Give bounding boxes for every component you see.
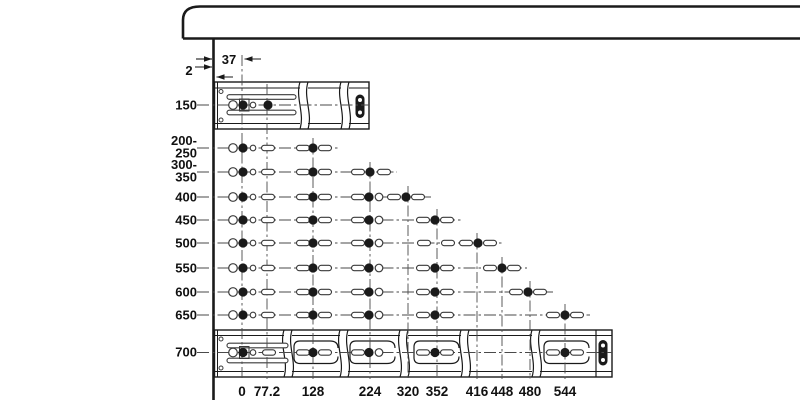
hole-450-7-slot bbox=[352, 217, 365, 222]
hole-500-5-dot bbox=[308, 238, 317, 247]
hole-200-250-0-ring bbox=[229, 144, 238, 153]
hole-700-12-slot bbox=[441, 350, 454, 355]
hole-650-8-dot bbox=[364, 310, 373, 319]
hole-450-11-dot bbox=[430, 215, 439, 224]
hole-500-7-slot bbox=[352, 240, 365, 245]
hole-550-13-slot bbox=[484, 265, 497, 270]
hole-700-6-slot bbox=[319, 350, 332, 355]
hole-650-13-slot bbox=[547, 312, 560, 317]
hole-450-1-dot bbox=[238, 215, 247, 224]
col-label-416: 416 bbox=[466, 384, 489, 399]
hole-600-0-ring bbox=[229, 288, 238, 297]
hole-500-10-slot bbox=[418, 240, 431, 245]
slide-rail-bottom-long-slot-1 bbox=[227, 358, 288, 363]
hole-400-5-dot bbox=[308, 192, 317, 201]
hole-600-15-slot bbox=[534, 289, 547, 294]
slide-rail-top-rear-hook-hole-bottom bbox=[358, 111, 362, 115]
hole-650-10-slot bbox=[417, 312, 430, 317]
hole-700-2-pin bbox=[250, 350, 256, 356]
hole-450-6-slot bbox=[319, 217, 332, 222]
hole-450-8-dot bbox=[364, 215, 373, 224]
hole-450-5-dot bbox=[308, 215, 317, 224]
hole-650-11-dot bbox=[430, 310, 439, 319]
hole-700-1-dot bbox=[238, 348, 247, 357]
hole-450-4-slot bbox=[297, 217, 310, 222]
hole-450-12-slot bbox=[441, 217, 454, 222]
row-label-650: 650 bbox=[175, 308, 197, 323]
hole-550-5-dot bbox=[308, 263, 317, 272]
hole-300-350-1-dot bbox=[238, 167, 247, 176]
hole-400-4-slot bbox=[297, 194, 310, 199]
hole-600-14-dot bbox=[523, 287, 532, 296]
hole-400-9-oring bbox=[375, 193, 383, 201]
row-label-550: 550 bbox=[175, 261, 197, 276]
hole-400-8-dot bbox=[364, 192, 373, 201]
hole-600-8-dot bbox=[364, 287, 373, 296]
hole-400-6-slot bbox=[319, 194, 332, 199]
hole-600-13-slot bbox=[510, 289, 523, 294]
dim-label-37: 37 bbox=[222, 52, 236, 67]
hole-600-2-pin bbox=[250, 289, 256, 295]
hole-650-4-slot bbox=[297, 312, 310, 317]
hole-200-250-6-slot bbox=[319, 145, 332, 150]
col-label-544: 544 bbox=[554, 384, 577, 399]
hole-150-0-ring bbox=[229, 101, 238, 110]
col-label-0: 0 bbox=[238, 384, 246, 399]
hole-450-0-ring bbox=[229, 216, 238, 225]
hole-300-350-4-slot bbox=[297, 169, 310, 174]
hole-500-12-slot bbox=[460, 240, 473, 245]
hole-500-13-dot bbox=[473, 238, 482, 247]
hole-300-350-6-slot bbox=[319, 169, 332, 174]
hole-550-12-slot bbox=[441, 265, 454, 270]
hole-500-6-slot bbox=[319, 240, 332, 245]
slide-rail-bottom-rivet-1 bbox=[219, 366, 223, 370]
hole-700-13-slot bbox=[547, 350, 560, 355]
hole-700-14-dot bbox=[560, 348, 569, 357]
dim-arrowhead-2-0 bbox=[204, 64, 212, 69]
col-label-352: 352 bbox=[426, 384, 449, 399]
hole-450-10-slot bbox=[417, 217, 430, 222]
hole-550-6-slot bbox=[319, 265, 332, 270]
hole-600-7-slot bbox=[352, 289, 365, 294]
hole-500-3-slot bbox=[262, 240, 275, 245]
hole-500-2-pin bbox=[250, 240, 256, 246]
hole-150-3-dot bbox=[263, 100, 272, 109]
hole-450-9-oring bbox=[375, 216, 383, 224]
slide-rail-top-rivet-0 bbox=[219, 90, 223, 94]
slide-rail-top-long-slot-1 bbox=[227, 110, 296, 115]
hole-400-2-pin bbox=[250, 194, 256, 200]
hole-650-12-slot bbox=[441, 312, 454, 317]
col-label-77.2: 77.2 bbox=[254, 384, 280, 399]
row-label-300-350-b: 350 bbox=[175, 170, 197, 185]
hole-500-11-slot bbox=[442, 240, 455, 245]
dim-arrowhead-37-1 bbox=[245, 56, 253, 61]
hole-400-0-ring bbox=[229, 193, 238, 202]
hole-550-2-pin bbox=[250, 265, 256, 271]
dim-arrowhead-2-1 bbox=[217, 74, 225, 79]
hole-550-7-slot bbox=[352, 265, 365, 270]
hole-500-4-slot bbox=[297, 240, 310, 245]
hole-500-8-dot bbox=[364, 238, 373, 247]
slide-rail-bottom-rear-hook-hole-top bbox=[601, 344, 605, 348]
col-label-320: 320 bbox=[397, 384, 420, 399]
hole-600-9-oring bbox=[375, 288, 383, 296]
hole-550-1-dot bbox=[238, 263, 247, 272]
hole-550-3-slot bbox=[262, 265, 275, 270]
hole-600-10-slot bbox=[417, 289, 430, 294]
col-label-128: 128 bbox=[302, 384, 325, 399]
hole-700-15-slot bbox=[571, 350, 584, 355]
hole-650-0-ring bbox=[229, 311, 238, 320]
hole-200-250-5-dot bbox=[308, 143, 317, 152]
hole-550-14-dot bbox=[497, 263, 506, 272]
hole-600-4-slot bbox=[297, 289, 310, 294]
hole-650-15-slot bbox=[571, 312, 584, 317]
hole-700-10-slot bbox=[417, 350, 430, 355]
hole-700-5-dot bbox=[308, 348, 317, 357]
hole-200-250-2-pin bbox=[250, 145, 256, 151]
hole-300-350-2-pin bbox=[250, 169, 256, 175]
slide-rail-bottom-long-slot-0 bbox=[227, 343, 288, 348]
slide-rail-top-long-slot-0 bbox=[227, 95, 296, 100]
hole-700-7-slot bbox=[352, 350, 365, 355]
hole-600-12-slot bbox=[441, 289, 454, 294]
hole-650-14-dot bbox=[560, 310, 569, 319]
hole-300-350-7-slot bbox=[352, 169, 365, 174]
slide-rail-bottom-rivet-0 bbox=[219, 337, 223, 341]
hole-400-12-slot bbox=[412, 194, 425, 199]
hole-600-11-dot bbox=[430, 287, 439, 296]
hole-600-6-slot bbox=[319, 289, 332, 294]
hole-400-10-slot bbox=[388, 194, 401, 199]
hole-650-2-pin bbox=[250, 312, 256, 318]
hole-550-0-ring bbox=[229, 264, 238, 273]
hole-500-9-oring bbox=[375, 239, 383, 247]
hole-650-5-dot bbox=[308, 310, 317, 319]
hole-550-11-dot bbox=[430, 263, 439, 272]
row-label-450: 450 bbox=[175, 213, 197, 228]
slide-rail-top-rivet-1 bbox=[219, 118, 223, 122]
hole-300-350-5-dot bbox=[308, 167, 317, 176]
row-label-400: 400 bbox=[175, 190, 197, 205]
hole-700-9-oring bbox=[375, 349, 383, 357]
hole-550-9-oring bbox=[375, 264, 383, 272]
hole-400-3-slot bbox=[262, 194, 275, 199]
hole-300-350-3-slot bbox=[262, 169, 275, 174]
hole-200-250-3-slot bbox=[262, 145, 275, 150]
hole-300-350-8-dot bbox=[365, 167, 374, 176]
hole-700-0-ring bbox=[229, 348, 238, 357]
col-label-224: 224 bbox=[359, 384, 382, 399]
hole-550-4-slot bbox=[297, 265, 310, 270]
hole-150-1-dot bbox=[238, 100, 247, 109]
row-label-150: 150 bbox=[175, 98, 197, 113]
dim-label-2: 2 bbox=[185, 63, 192, 78]
col-label-448: 448 bbox=[491, 384, 514, 399]
hole-550-15-slot bbox=[508, 265, 521, 270]
hole-700-3-slot bbox=[263, 350, 276, 355]
hole-650-6-slot bbox=[319, 312, 332, 317]
hole-650-3-slot bbox=[262, 312, 275, 317]
hole-500-0-ring bbox=[229, 239, 238, 248]
hole-300-350-9-slot bbox=[378, 169, 391, 174]
hole-700-11-dot bbox=[430, 348, 439, 357]
hole-450-3-slot bbox=[262, 217, 275, 222]
hole-450-2-pin bbox=[250, 217, 256, 223]
hole-200-250-1-dot bbox=[238, 143, 247, 152]
row-label-700: 700 bbox=[175, 345, 197, 360]
row-label-600: 600 bbox=[175, 285, 197, 300]
hole-650-7-slot bbox=[352, 312, 365, 317]
slide-rail-bottom-rear-hook-hole-bottom bbox=[601, 358, 605, 362]
hole-400-7-slot bbox=[352, 194, 365, 199]
hole-550-8-dot bbox=[364, 263, 373, 272]
hole-650-1-dot bbox=[238, 310, 247, 319]
hole-600-5-dot bbox=[308, 287, 317, 296]
hole-600-1-dot bbox=[238, 287, 247, 296]
mounting-diagram-svg: 077.2128224320352416448480544150200-2503… bbox=[0, 0, 800, 400]
hole-550-10-slot bbox=[417, 265, 430, 270]
col-label-480: 480 bbox=[519, 384, 542, 399]
hole-400-1-dot bbox=[238, 192, 247, 201]
hole-600-3-slot bbox=[262, 289, 275, 294]
hole-300-350-0-ring bbox=[229, 168, 238, 177]
dim-arrowhead-37-0 bbox=[204, 56, 212, 61]
hole-500-14-slot bbox=[484, 240, 497, 245]
hole-200-250-4-slot bbox=[297, 145, 310, 150]
mounting-diagram: 077.2128224320352416448480544150200-2503… bbox=[0, 0, 800, 400]
cabinet-top-panel-outline bbox=[183, 7, 800, 39]
hole-400-11-dot bbox=[401, 192, 410, 201]
slide-rail-top-rear-hook-hole-top bbox=[358, 98, 362, 102]
hole-700-4-slot bbox=[297, 350, 310, 355]
row-label-500: 500 bbox=[175, 236, 197, 251]
hole-150-2-pin bbox=[250, 102, 256, 108]
hole-650-9-oring bbox=[375, 311, 383, 319]
hole-700-8-dot bbox=[364, 348, 373, 357]
hole-500-1-dot bbox=[238, 238, 247, 247]
